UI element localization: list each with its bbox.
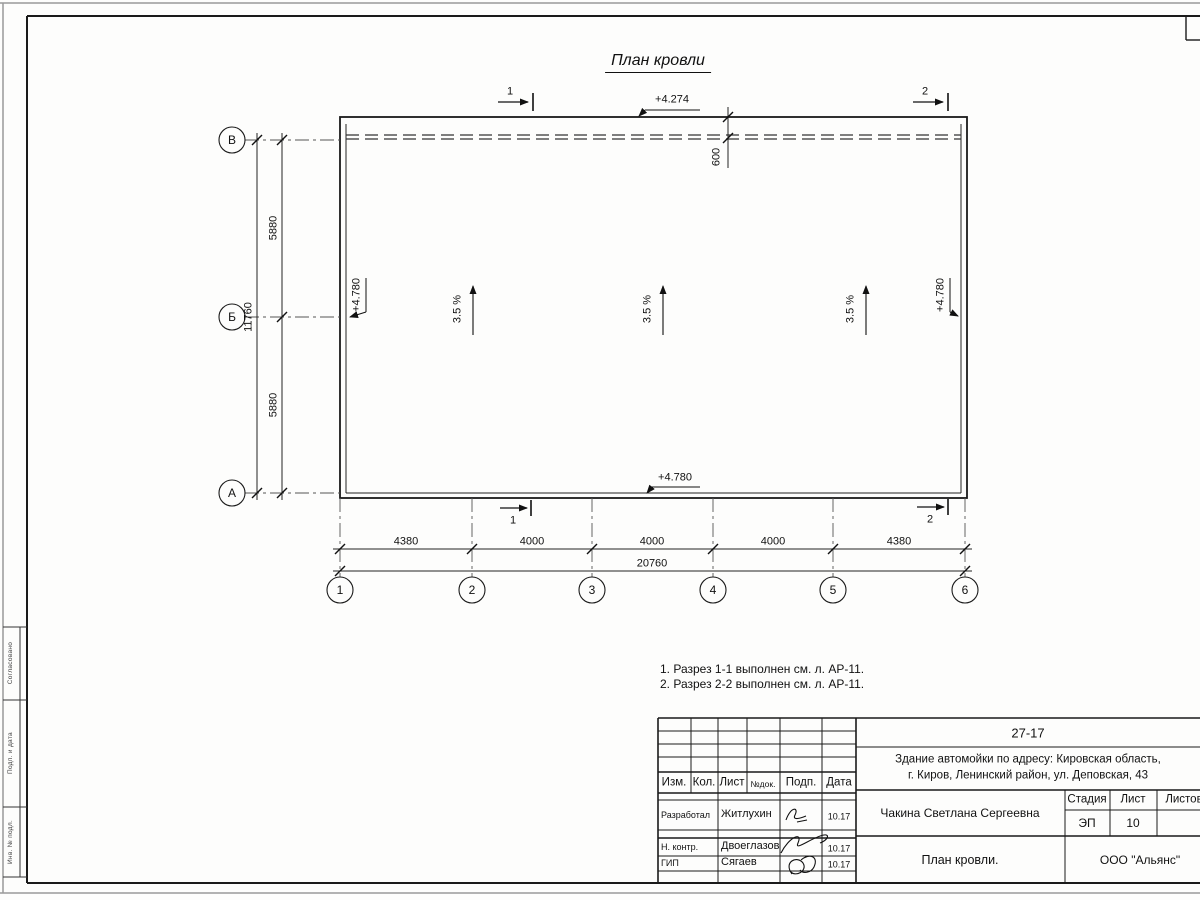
- company-name: ООО "Альянс": [1100, 854, 1180, 866]
- tb-header-data: Дата: [826, 777, 851, 789]
- tb-role: ГИП: [661, 859, 679, 868]
- slope-label: 3.5 %: [453, 295, 464, 323]
- corner-box: [1186, 16, 1200, 40]
- object-address-line2: г. Киров, Ленинский район, ул. Деповская…: [908, 770, 1148, 782]
- section-label-2-top: 2: [922, 87, 928, 98]
- drawing-sheet: План кровли +4.274 +4.780 +4.780 +4.780 …: [0, 0, 1200, 900]
- tb-header-list: Лист: [720, 777, 745, 789]
- tb-header-podp: Подп.: [786, 777, 817, 789]
- note-line: 1. Разрез 1-1 выполнен см. л. АР-11.: [660, 663, 864, 675]
- dim-label-row: 5880: [269, 393, 280, 417]
- slope-label: 3.5 %: [846, 295, 857, 323]
- grid-bubble-label: 6: [962, 584, 969, 596]
- tb-header-kol: Кол.: [693, 777, 716, 789]
- slope-label: 3.5 %: [643, 295, 654, 323]
- tb-role: Разработал: [661, 811, 710, 820]
- grid-bubble-label: 5: [830, 584, 837, 596]
- tb-name: Двоеглазов: [721, 841, 779, 852]
- grid-bubble-label: А: [228, 487, 236, 499]
- side-stamp-label: Инв. № подл.: [8, 820, 15, 864]
- dim-label-col: 4000: [520, 537, 544, 548]
- dim-label-col: 4000: [761, 537, 785, 548]
- elevation-label-top: +4.274: [655, 95, 689, 106]
- doc-number: 27-17: [1011, 727, 1044, 740]
- slope-arrows: [473, 286, 866, 335]
- stage-label: Стадия: [1067, 794, 1106, 806]
- sheet-title: План кровли.: [921, 854, 998, 867]
- object-address-line1: Здание автомойки по адресу: Кировская об…: [895, 754, 1161, 766]
- elevation-label-left: +4.780: [352, 278, 363, 312]
- grid-bubbles: [219, 127, 978, 603]
- side-stamp-label: Подп. и дата: [8, 732, 15, 774]
- side-stamp-label: Согласовано: [8, 642, 15, 684]
- dimension-ticks: [252, 112, 970, 576]
- grid-bubble-label: 1: [337, 584, 344, 596]
- dim-label-col: 4380: [394, 537, 418, 548]
- dimension-lines: [257, 107, 972, 571]
- dim-label-col: 4380: [887, 537, 911, 548]
- sheet-label: Лист: [1121, 794, 1146, 806]
- sheet-value: 10: [1126, 817, 1139, 829]
- tb-date: 10.17: [828, 861, 851, 870]
- elevation-leaders: [350, 110, 958, 493]
- dim-label-col: 4000: [640, 537, 664, 548]
- signature-marks: [781, 809, 827, 874]
- tb-name: Сягаев: [721, 857, 757, 868]
- grid-bubble-label: В: [228, 134, 236, 146]
- section-label-1-top: 1: [507, 87, 513, 98]
- grid-axes: [245, 140, 965, 577]
- section-label-1-bottom: 1: [510, 516, 516, 527]
- grid-bubble-label: 2: [469, 584, 476, 596]
- customer-name: Чакина Светлана Сергеевна: [880, 807, 1039, 819]
- note-line: 2. Разрез 2-2 выполнен см. л. АР-11.: [660, 678, 864, 690]
- dim-label-row-total: 11760: [244, 302, 255, 332]
- grid-bubble-label: 3: [589, 584, 596, 596]
- dim-label-parapet: 600: [712, 148, 723, 166]
- tb-role: Н. контр.: [661, 843, 698, 852]
- roof-outline: [340, 117, 967, 498]
- dim-label-row: 5880: [269, 216, 280, 240]
- tb-header-ndok: №док.: [751, 780, 776, 789]
- grid-bubble-label: Б: [228, 311, 236, 323]
- drawing-title: План кровли: [605, 53, 711, 73]
- tb-name: Житлухин: [721, 809, 772, 820]
- elevation-label-bottom: +4.780: [658, 473, 692, 484]
- tb-header-izm: Изм.: [662, 777, 687, 789]
- section-marks: [498, 93, 948, 516]
- tb-date: 10.17: [828, 813, 851, 822]
- elevation-label-right: +4.780: [936, 278, 947, 312]
- dim-label-col-total: 20760: [637, 559, 668, 570]
- stage-value: ЭП: [1078, 817, 1095, 829]
- sheets-label: Листов: [1165, 794, 1200, 806]
- grid-bubble-label: 4: [710, 584, 717, 596]
- tb-date: 10.17: [828, 845, 851, 854]
- section-label-2-bottom: 2: [927, 515, 933, 526]
